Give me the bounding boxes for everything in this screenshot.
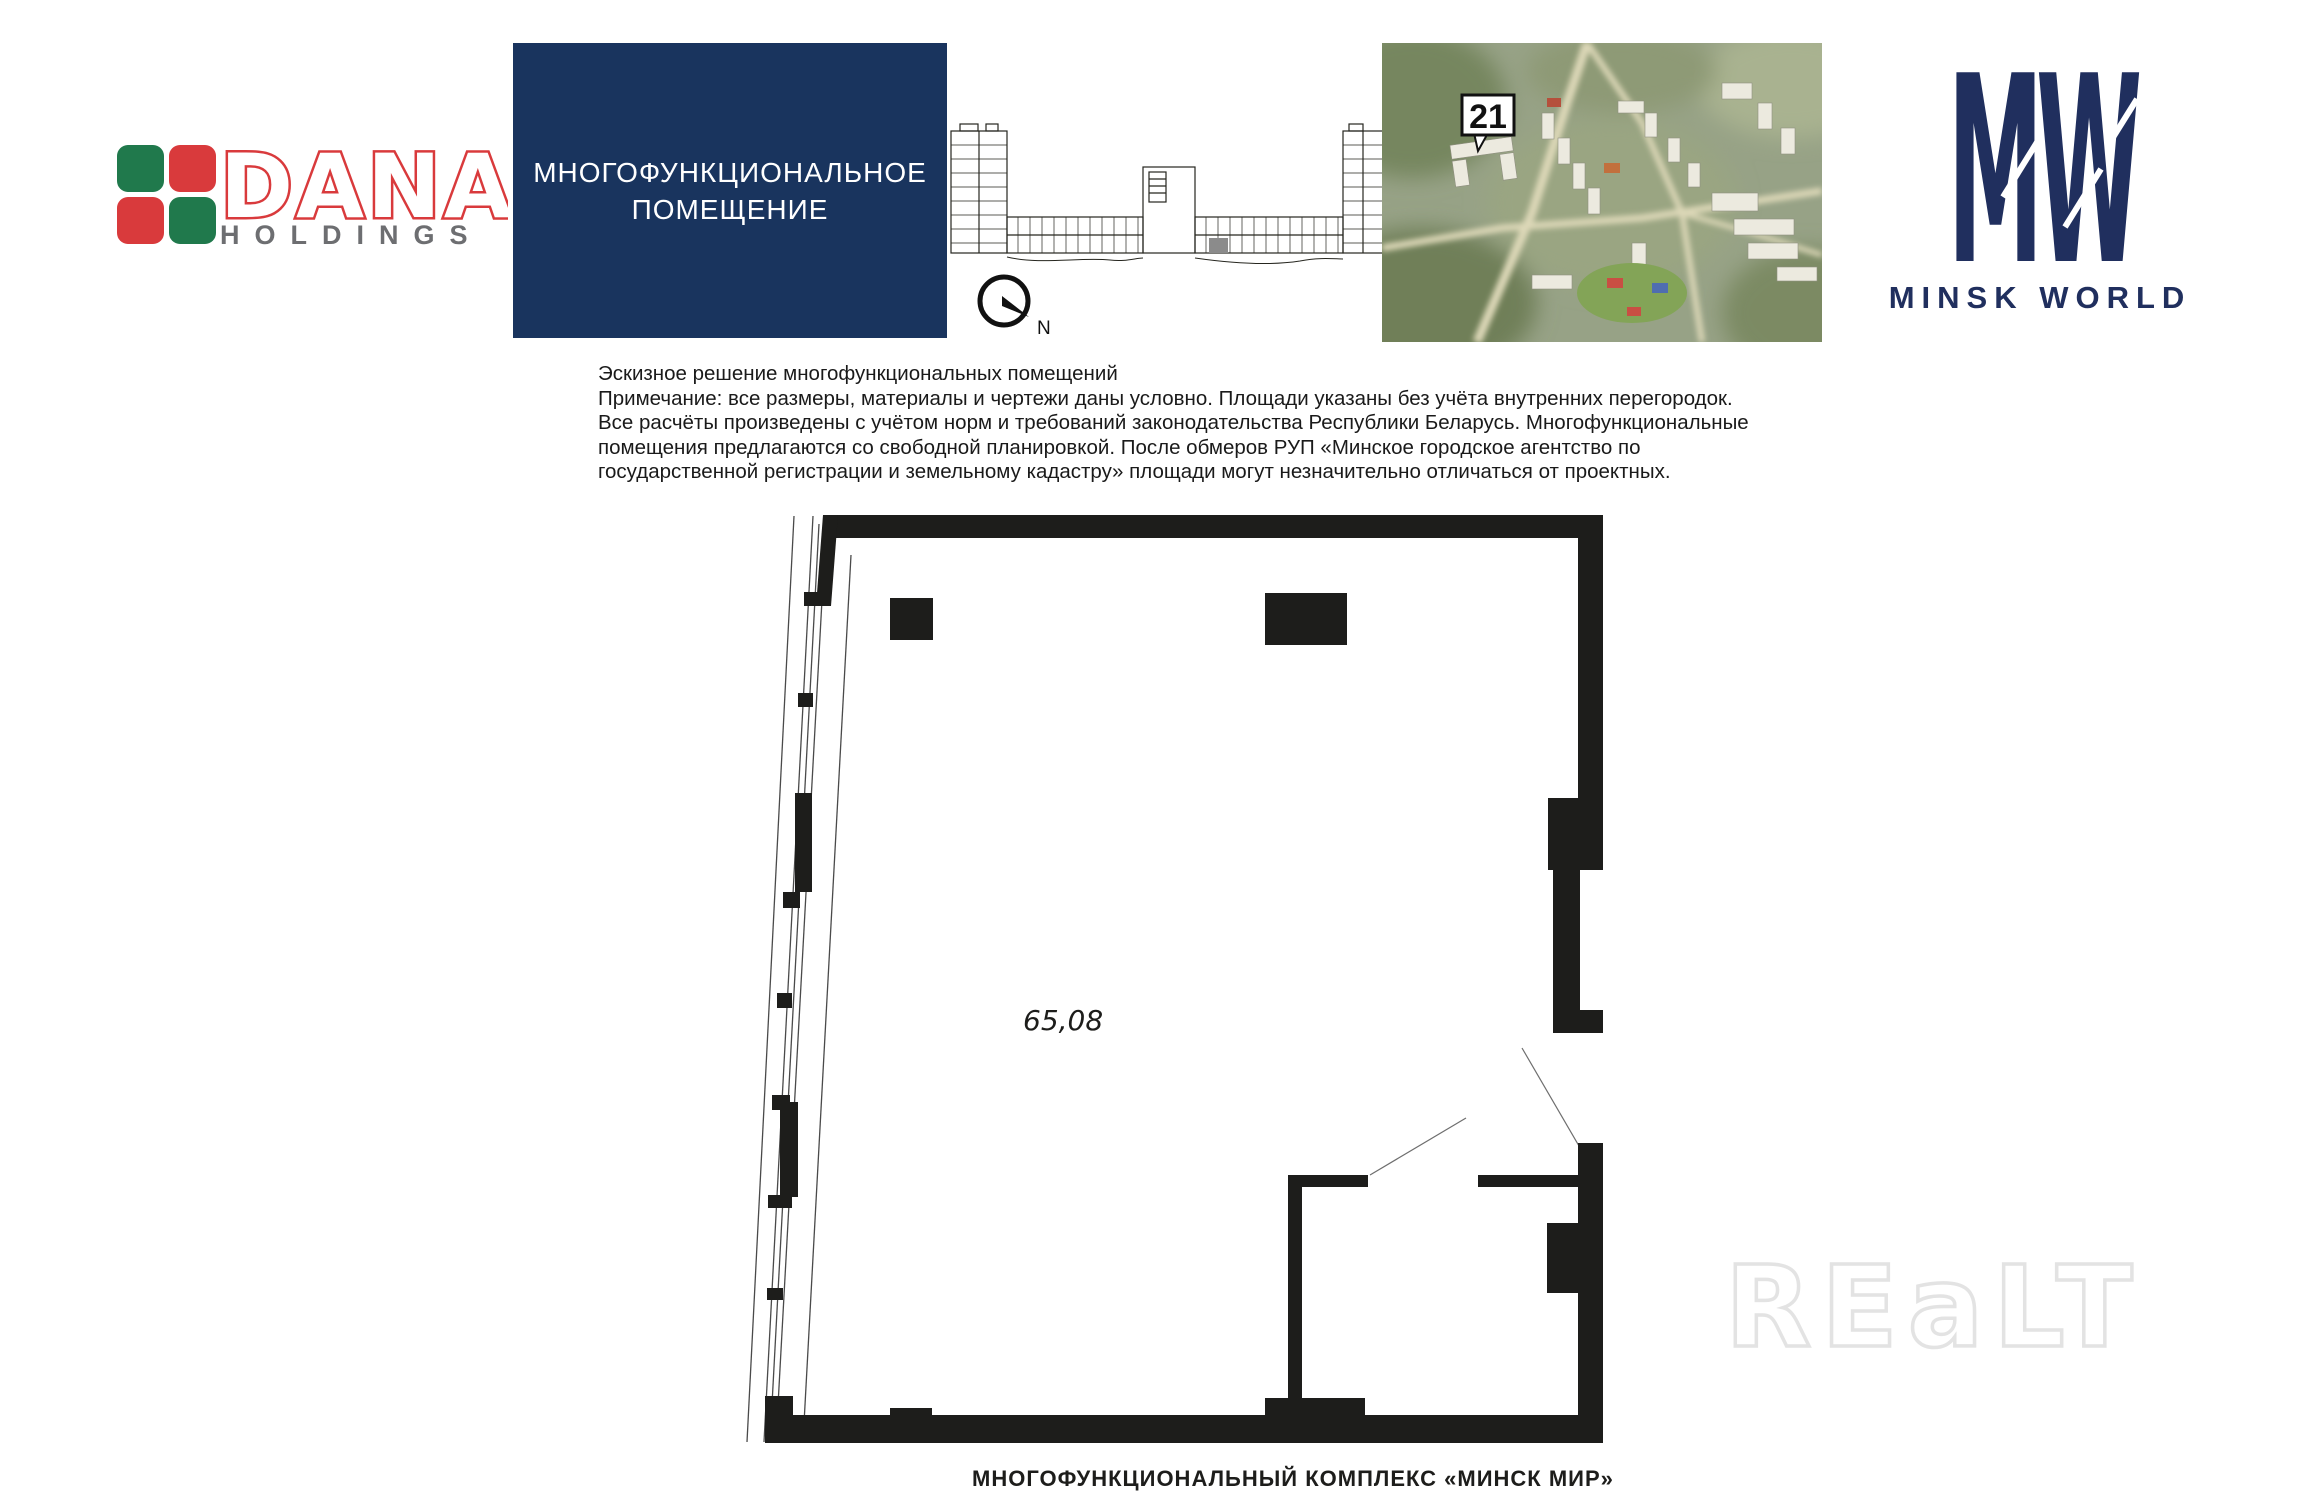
note-line: Все расчёты произведены с учётом норм и …: [598, 411, 1788, 436]
compass-icon: [980, 277, 1029, 325]
title-line-1: МНОГОФУНКЦИОНАЛЬНОЕ: [533, 154, 927, 191]
area-label: 65,08: [1023, 1004, 1103, 1037]
realt-watermark: REaLT: [1715, 1238, 2235, 1378]
floor-plan-drawing: 65,08: [740, 500, 1620, 1476]
cropped-caption: МНОГОФУНКЦИОНАЛЬНЫЙ КОМПЛЕКС «МИНСК МИР»: [972, 1466, 1614, 1492]
glazing-mullions: [767, 693, 813, 1300]
mw-monogram-text: MW: [1948, 65, 2140, 275]
watermark-text: REaLT: [1725, 1243, 2143, 1373]
leader-lines: [1370, 1048, 1579, 1175]
plan-walls: [765, 515, 1603, 1443]
minsk-world-wordmark: MINSK WORLD: [1868, 280, 2212, 316]
title-line-2: ПОМЕЩЕНИЕ: [632, 191, 829, 228]
aerial-render: 21: [1382, 43, 1822, 342]
title-box: МНОГОФУНКЦИОНАЛЬНОЕ ПОМЕЩЕНИЕ: [513, 43, 947, 338]
badge-21-label: 21: [1469, 98, 1507, 136]
note-line: Эскизное решение многофункциональных пом…: [598, 362, 1788, 387]
compass-north-label: N: [1037, 318, 1051, 339]
dana-logo-squares-icon: [117, 145, 216, 244]
note-line: государственной регистрации и земельному…: [598, 460, 1788, 485]
key-plan-highlighted-unit: [1209, 238, 1228, 253]
minsk-world-monogram: MW: [1945, 65, 2195, 275]
dana-holdings-logo: DANA HOLDINGS: [108, 140, 508, 252]
key-plan-drawing: N: [947, 43, 1387, 342]
key-plan-outline: [951, 124, 1383, 264]
note-block: Эскизное решение многофункциональных пом…: [598, 362, 1788, 485]
dana-subtitle: HOLDINGS: [220, 220, 483, 250]
glazing-lines: [747, 516, 851, 1442]
note-line: помещения предлагаются со свободной план…: [598, 436, 1788, 461]
key-plan-room-ticks: [951, 145, 1383, 253]
note-line: Примечание: все размеры, материалы и чер…: [598, 387, 1788, 412]
